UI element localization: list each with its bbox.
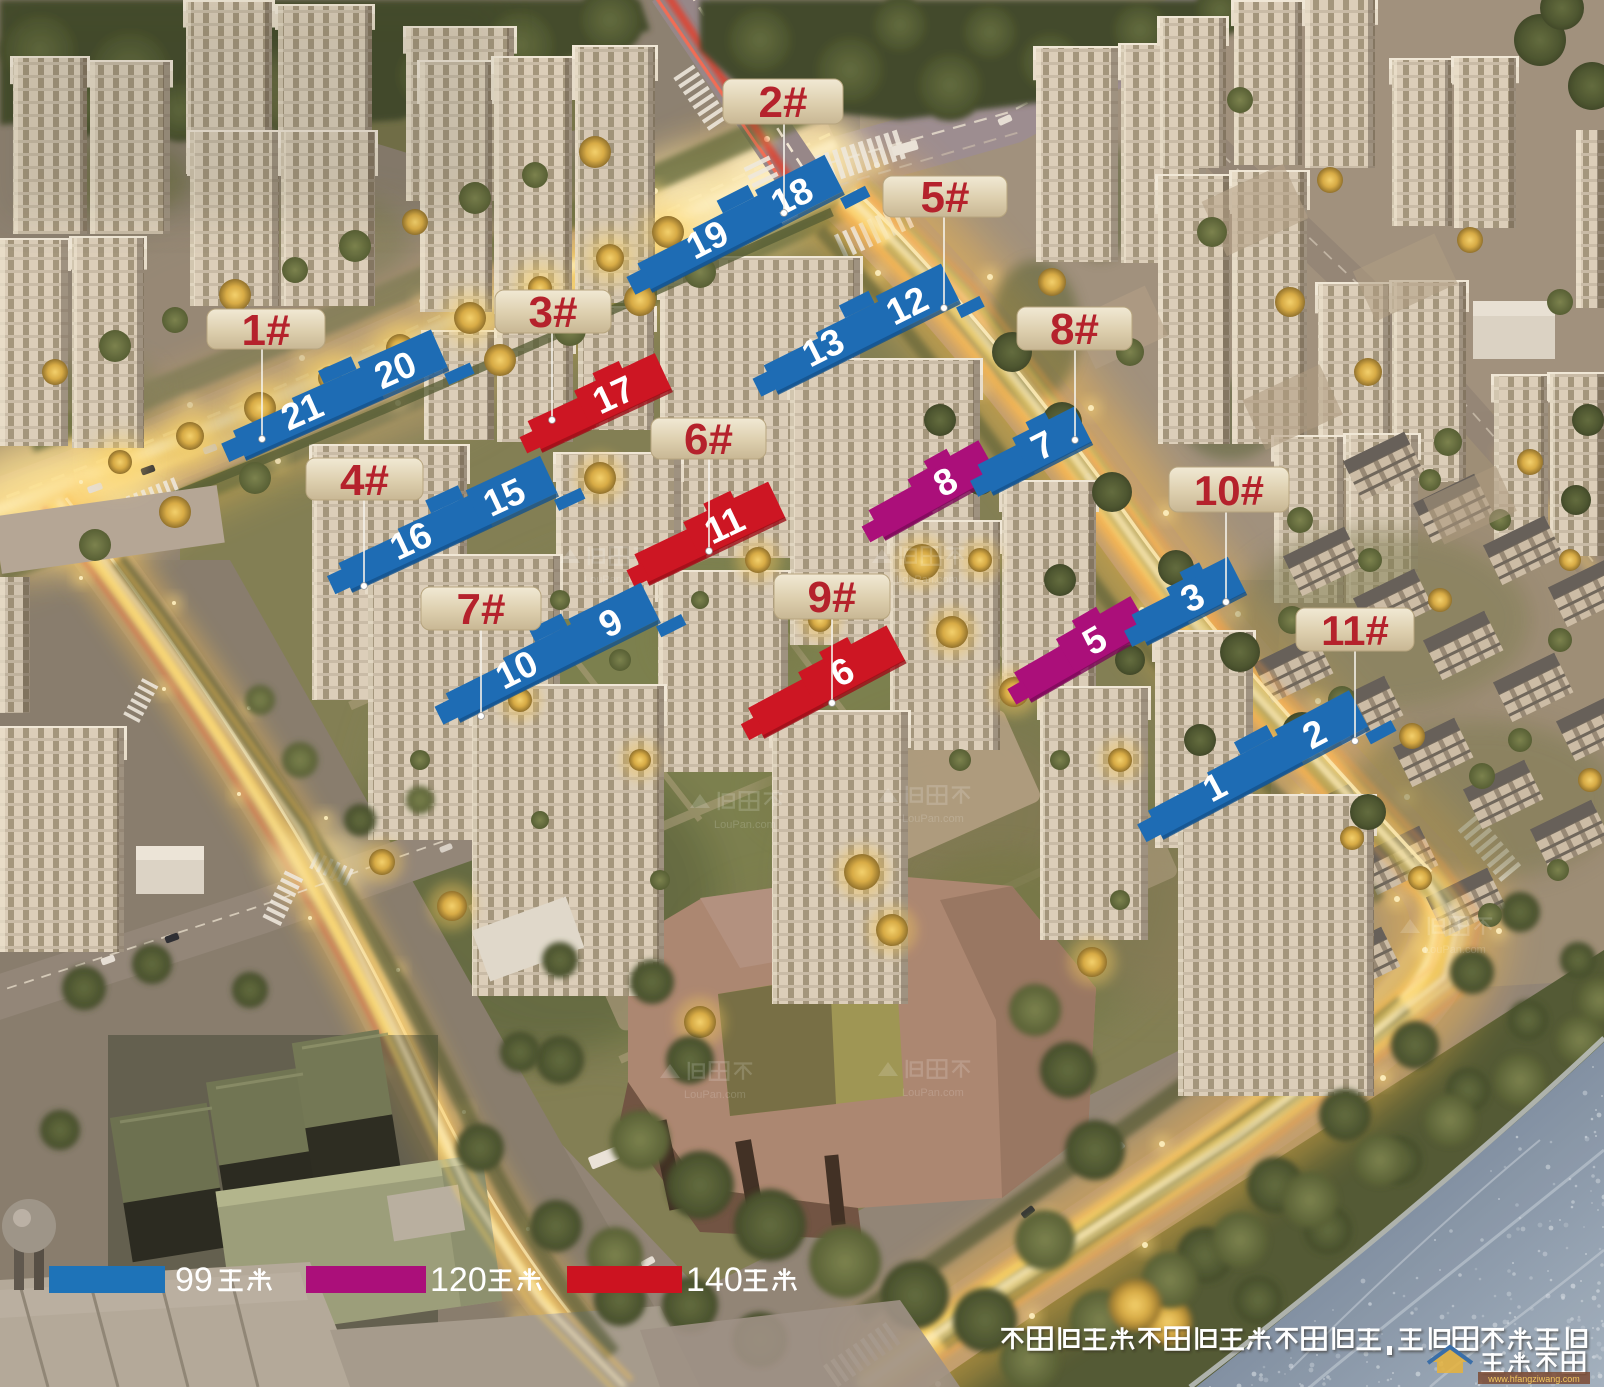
svg-text:99: 99	[175, 1261, 213, 1299]
svg-text:www.hfangziwang.com: www.hfangziwang.com	[1487, 1374, 1580, 1384]
svg-text:11#: 11#	[1321, 607, 1389, 654]
svg-text:7#: 7#	[457, 585, 506, 634]
svg-text:3#: 3#	[529, 288, 578, 337]
svg-text:1#: 1#	[242, 306, 291, 355]
svg-text:9#: 9#	[808, 573, 857, 622]
svg-text:LouPan.com: LouPan.com	[1424, 944, 1486, 956]
svg-text:6#: 6#	[684, 415, 733, 464]
svg-text:5#: 5#	[921, 173, 970, 222]
svg-text:10#: 10#	[1194, 467, 1264, 514]
svg-text:LouPan.com: LouPan.com	[902, 1087, 964, 1099]
svg-text:LouPan.com: LouPan.com	[684, 1089, 746, 1101]
svg-text:LouPan.com: LouPan.com	[714, 819, 776, 831]
svg-text:8#: 8#	[1050, 305, 1099, 354]
svg-text:140: 140	[686, 1261, 743, 1299]
svg-text:LouPan.com: LouPan.com	[902, 813, 964, 825]
svg-text:2#: 2#	[759, 78, 808, 127]
svg-text:LouPan.com: LouPan.com	[896, 574, 958, 586]
svg-text:4#: 4#	[340, 456, 389, 505]
svg-text:120: 120	[430, 1261, 487, 1299]
